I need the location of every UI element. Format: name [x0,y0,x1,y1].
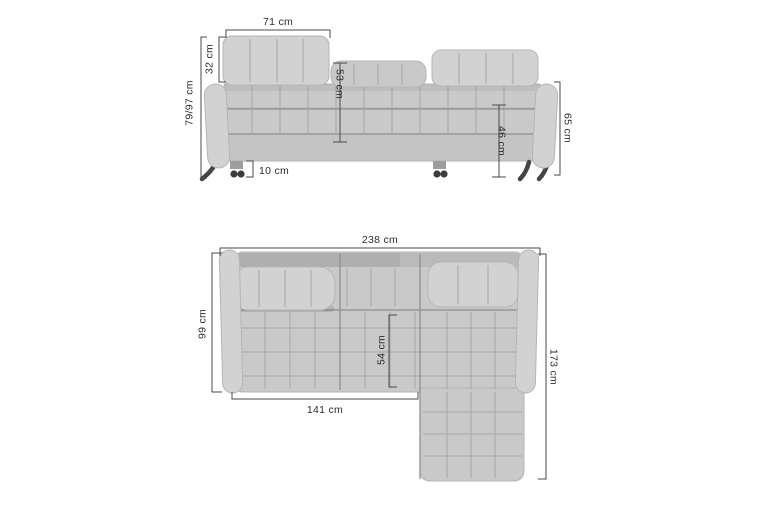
top-right-back-cushion [428,262,518,307]
front-legs [202,161,548,179]
dim-label-headrest-height: 32 cm [204,44,216,74]
dim-label-leg-height: 10 cm [259,165,289,177]
front-left-armrest [204,83,230,168]
top-view: 238 cm 99 cm 173 cm 141 cm 54 cm [197,234,560,481]
front-left-caster-wheel [230,170,237,177]
front-mid-caster-bracket [433,161,446,169]
top-back-pillow [233,267,335,310]
front-seat-band [222,108,542,135]
dim-label-armrest-height: 65 cm [561,113,573,143]
front-right-headrest [432,50,538,86]
front-base [225,134,540,161]
front-left-caster-bracket [230,161,243,169]
front-view: 71 cm 32 cm 79/97 cm 53 cm 46 cm 65 cm [184,16,574,179]
top-right-armrest [515,250,539,393]
sofa-dimension-diagram: 71 cm 32 cm 79/97 cm 53 cm 46 cm 65 cm [0,0,768,512]
front-left-headrest [223,36,329,85]
front-right-leg [520,162,529,179]
dim-label-total-height: 79/97 cm [184,80,196,126]
dim-label-backrest-height: 53 cm [333,69,345,99]
top-backrest-shade-left [239,253,400,267]
front-right-armrest [532,83,558,168]
dim-label-seat-depth: 54 cm [376,335,388,365]
dim-label-depth: 99 cm [197,309,209,339]
front-left-caster-wheel [237,170,244,177]
front-mid-caster-wheel [440,170,447,177]
dim-headrest-width: 71 cm [226,16,330,38]
front-sofa [202,36,558,179]
dim-label-seat-height: 46 cm [495,126,507,156]
dim-label-total-length: 173 cm [547,349,559,385]
front-mid-caster-wheel [433,170,440,177]
dim-label-headrest-width: 71 cm [263,16,293,28]
dim-seat-width: 141 cm [232,392,418,416]
top-left-armrest [219,250,243,393]
dim-depth: 99 cm [197,253,222,392]
dim-total-length: 173 cm [538,254,559,479]
dim-label-total-width: 238 cm [362,234,398,246]
dim-label-seat-width: 141 cm [307,404,343,416]
dim-leg-height: 10 cm [246,161,289,177]
